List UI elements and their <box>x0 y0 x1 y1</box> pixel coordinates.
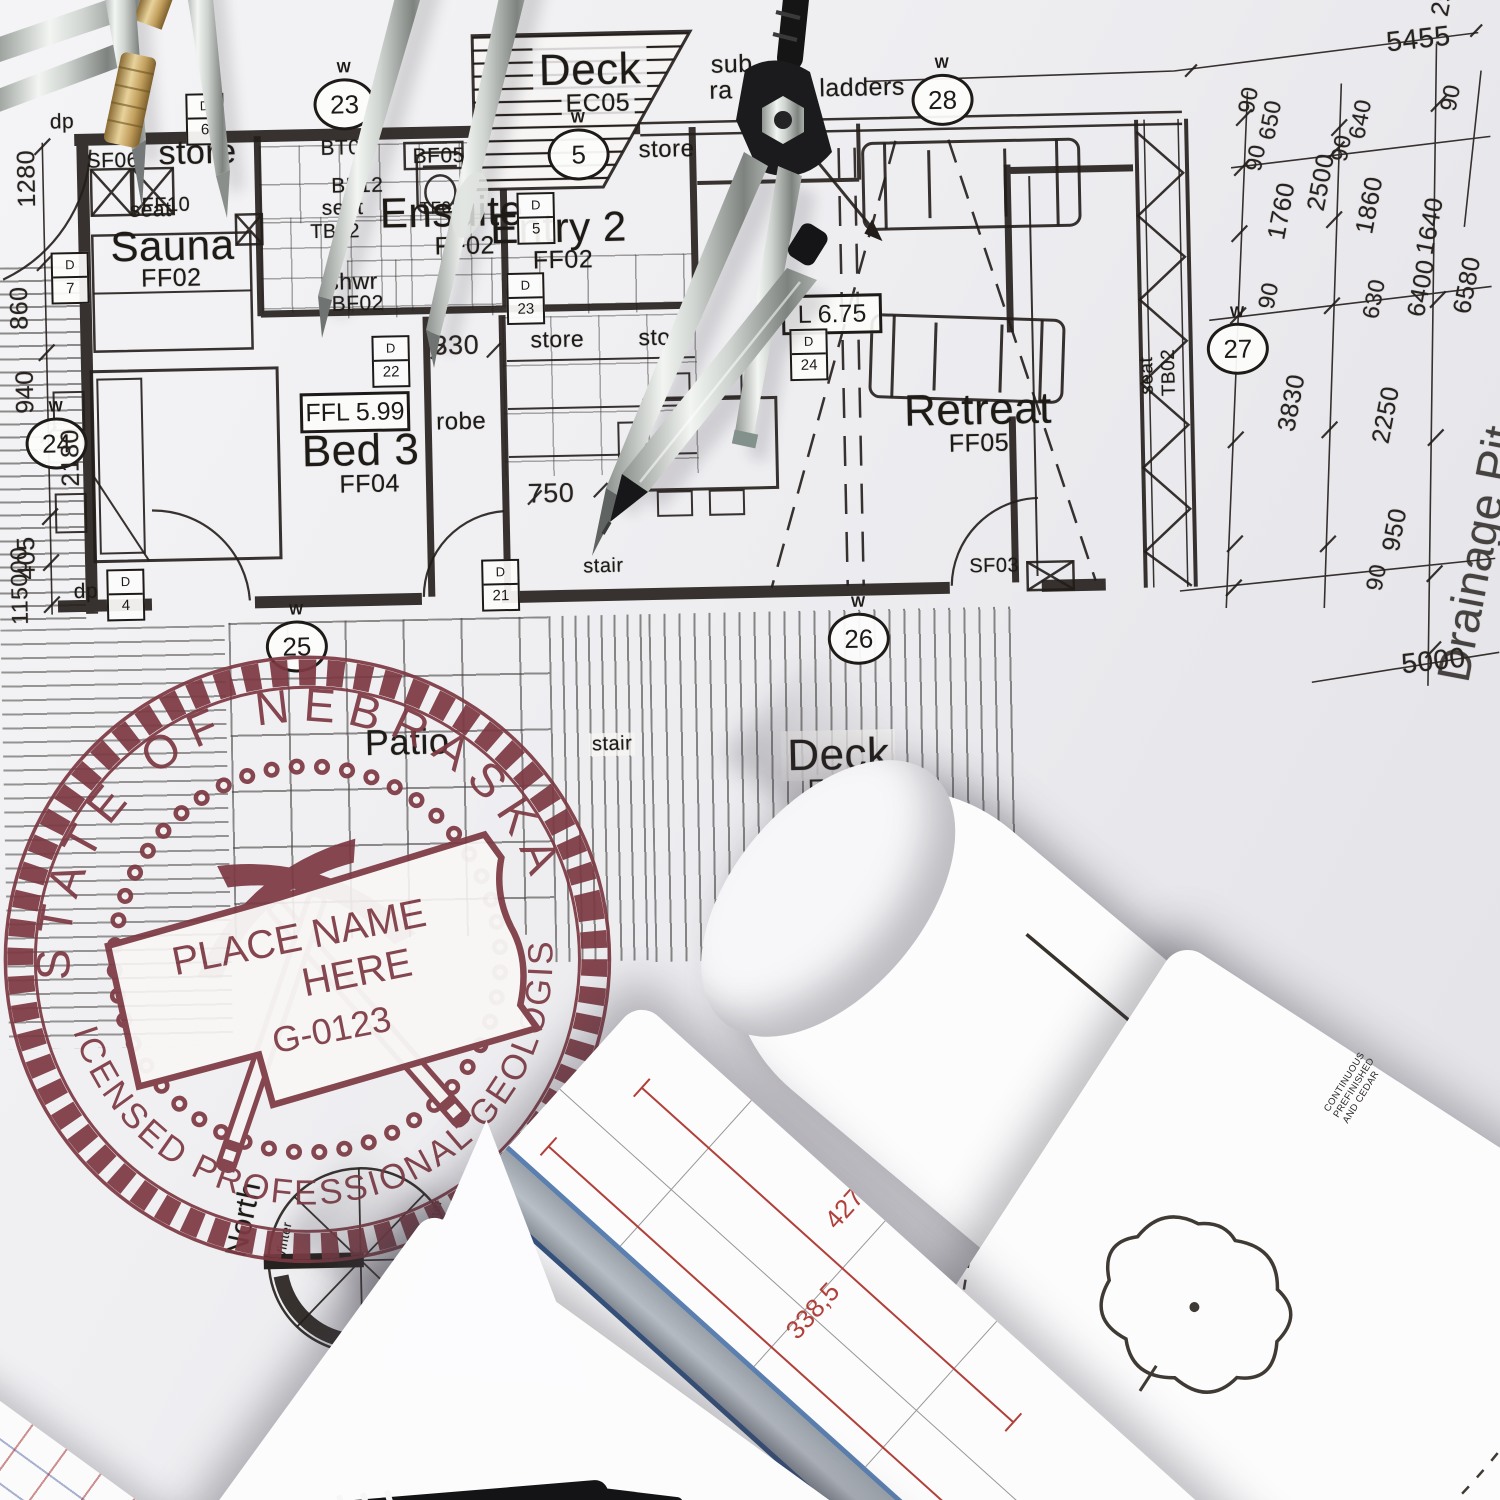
dim-750: 750 <box>527 478 574 510</box>
room-code-retreat: FF05 <box>948 429 1009 459</box>
door-letter: D <box>187 95 221 118</box>
door-number: 6 <box>188 117 222 141</box>
door-letter: D <box>483 561 517 584</box>
dim-90-f: 90 <box>1361 562 1393 593</box>
door-number: 7 <box>53 276 87 300</box>
room-code-sauna: FF02 <box>141 263 202 293</box>
label-robe: robe <box>436 407 487 436</box>
dim-1280: 1280 <box>12 150 42 208</box>
code-sf06: SF06 <box>86 149 139 174</box>
window-letter: W <box>914 54 970 72</box>
note-frag-2: ra <box>709 76 733 105</box>
door-tag-24: D24 <box>789 328 828 381</box>
door-letter: D <box>53 254 87 277</box>
door-tag-5: D5 <box>516 192 555 245</box>
door-number: 5 <box>519 216 553 240</box>
window-number: 26 <box>844 623 874 655</box>
ffl-level-text: FFL 5.99 <box>305 397 405 428</box>
room-code-bed3: FF04 <box>339 469 400 499</box>
door-letter: D <box>108 571 142 594</box>
note-frag-4: ed <box>784 99 813 129</box>
label-dp-2: dp <box>73 580 98 605</box>
code-tf01: TF01 <box>420 198 462 219</box>
code-tb02a: TB02 <box>310 220 360 244</box>
door-number: 21 <box>484 583 518 607</box>
dim-940: 940 <box>11 370 41 414</box>
door-tag-4: D4 <box>106 569 145 622</box>
window-letter: W <box>316 59 372 77</box>
dim-90-e: 90 <box>1253 280 1285 311</box>
window-number: 27 <box>1223 333 1253 365</box>
door-letter: D <box>373 337 407 360</box>
door-number: 4 <box>109 593 143 617</box>
code-tb02b: TB02 <box>1158 349 1181 397</box>
door-letter: D <box>508 274 542 297</box>
code-ff10: FF10 <box>141 194 190 218</box>
window-number: 28 <box>928 84 958 116</box>
ffl-level-box: FFL 5.99 <box>300 391 411 433</box>
dim-115000: 115000 <box>5 546 34 625</box>
note-frag-1: sub <box>710 50 752 80</box>
window-letter: W <box>268 601 324 619</box>
code-bt02: BT02 <box>320 136 373 161</box>
section-arrow <box>809 149 883 242</box>
door-tag-21: D21 <box>481 559 520 612</box>
door-tag-7: D7 <box>51 252 90 305</box>
door-number: 24 <box>792 352 826 376</box>
dim-330: 330 <box>432 330 479 362</box>
code-bf02: BF02 <box>331 292 384 317</box>
label-store-3: store <box>530 325 584 353</box>
dim-860: 860 <box>5 286 35 330</box>
sofas <box>862 139 1083 407</box>
label-store-4: store <box>638 323 692 351</box>
window-letter: W <box>830 593 886 611</box>
door-letter: D <box>518 194 552 217</box>
red-dim-338-5: 338,5 <box>780 1276 846 1344</box>
label-seat-2: seat <box>321 196 363 221</box>
room-code-entry2: FF02 <box>533 245 594 275</box>
dim-90-d: 90 <box>1435 82 1467 113</box>
window-letter: W <box>550 109 606 127</box>
code-sf03: SF03 <box>969 554 1019 578</box>
door-letter: D <box>791 330 825 353</box>
label-seat-3: seat <box>1136 356 1159 394</box>
note-frag-3: ladders <box>819 73 905 104</box>
room-code-ensuite: FF02 <box>434 231 495 261</box>
photo-blueprints-desk: Sauna FF02 Ensuite FF02 Entry 2 FF02 Dec… <box>0 0 1500 1500</box>
dim-2180: 2180 <box>56 429 86 487</box>
dim-90-b: 90 <box>1240 142 1272 173</box>
walls <box>48 112 1192 615</box>
code-bf12: BF12 <box>331 174 384 199</box>
window-number: 5 <box>571 139 586 170</box>
code-bf05: BF05 <box>412 144 465 169</box>
door-tag-6: D6 <box>185 93 224 146</box>
tree-sketch-icon <box>1056 1182 1320 1443</box>
l675-level-text: L 6.75 <box>797 299 866 329</box>
window-number: 23 <box>330 89 360 121</box>
door-number: 22 <box>374 359 408 383</box>
door-tag-22: D22 <box>371 335 410 388</box>
label-dp-1: dp <box>50 110 75 135</box>
door-tag-23: D23 <box>506 272 545 325</box>
label-store-2: store <box>638 135 694 164</box>
door-number: 23 <box>509 296 543 320</box>
label-stair-1: stair <box>583 555 624 579</box>
